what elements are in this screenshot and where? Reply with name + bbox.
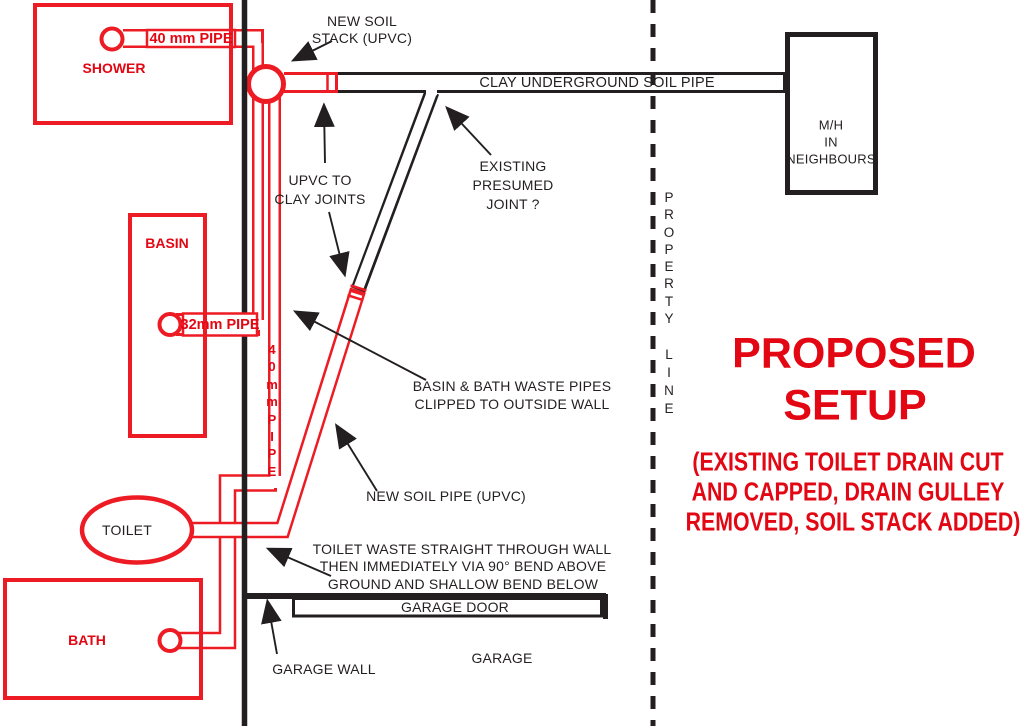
upvc-joints-label-line1: UPVC TO	[288, 172, 351, 188]
upvc-clay-stub-pipe	[284, 73, 338, 92]
title-note-line3: REMOVED, SOIL STACK ADDED)	[686, 507, 1021, 538]
shower-label: SHOWER	[83, 60, 146, 76]
existing-joint-label-line3: JOINT ?	[486, 196, 539, 212]
arrow-garage-wall	[268, 604, 277, 654]
garage-door-label: GARAGE DOOR	[401, 599, 509, 615]
toilet-waste-note-line2: THEN IMMEDIATELY VIA 90° BEND ABOVE	[320, 558, 606, 574]
toilet-waste-note-line1: TOILET WASTE STRAIGHT THROUGH WALL	[313, 541, 612, 557]
clipped-pipes-label-line1: BASIN & BATH WASTE PIPES	[413, 378, 612, 394]
existing-joint-label-line1: EXISTING	[480, 158, 547, 174]
title-note-line2: AND CAPPED, DRAIN GULLEY	[692, 477, 1005, 508]
plumbing-plan-diagram: NEW SOIL STACK (UPVC) CLAY UNDERGROUND S…	[0, 0, 1024, 726]
basin-label: BASIN	[145, 235, 189, 251]
new-soil-stack-label-line1: NEW SOIL	[327, 13, 397, 29]
title-note-line1: (EXISTING TOILET DRAIN CUT	[692, 447, 1003, 478]
upvc-joints-label-line2: CLAY JOINTS	[274, 191, 365, 207]
property-word-vertical: PROPERTY	[664, 189, 675, 327]
new-soil-pipe-label: NEW SOIL PIPE (UPVC)	[366, 488, 526, 504]
bath-outlet-circle	[160, 630, 181, 651]
existing-clay-diagonal-pipe	[358, 90, 433, 290]
clipped-pipes-label-line2: CLIPPED TO OUTSIDE WALL	[415, 396, 610, 412]
arrow-new-soil-pipe	[338, 428, 377, 491]
bath-waste-pipe	[176, 483, 277, 641]
arrow-upvc-joint-top	[324, 108, 325, 163]
line-word-vertical: LINE	[664, 346, 674, 418]
arrow-existing-joint	[449, 110, 491, 155]
riser-pipe-label-vertical: 40mmPIPE	[266, 341, 278, 480]
garage-wall-label: GARAGE WALL	[272, 661, 376, 677]
manhole-label-line3: NEIGHBOURS	[786, 152, 875, 167]
toilet-label: TOILET	[102, 522, 152, 538]
clay-pipe-label: CLAY UNDERGROUND SOIL PIPE	[479, 75, 714, 91]
garage-label: GARAGE	[471, 650, 532, 666]
title-line1: PROPOSED	[732, 330, 976, 379]
shower-outlet-circle	[102, 29, 123, 50]
toilet-waste-note-line3: GROUND AND SHALLOW BEND BELOW	[328, 576, 598, 592]
basin-pipe-label: 32mm PIPE	[181, 317, 260, 333]
title-line2: SETUP	[783, 382, 926, 431]
arrow-upvc-joint-diagonal	[329, 212, 344, 272]
manhole-box	[788, 35, 876, 193]
basin-outlet-circle	[160, 314, 181, 335]
manhole-label-line2: IN	[824, 135, 837, 150]
soil-stack-circle	[249, 67, 284, 102]
manhole-label-line1: M/H	[819, 118, 843, 133]
new-soil-stack-label-line2: STACK (UPVC)	[312, 30, 412, 46]
arrow-clipped-pipes	[298, 313, 426, 380]
existing-joint-label-line2: PRESUMED	[473, 177, 554, 193]
shower-pipe-label: 40 mm PIPE	[149, 31, 232, 47]
bath-label: BATH	[68, 632, 106, 648]
